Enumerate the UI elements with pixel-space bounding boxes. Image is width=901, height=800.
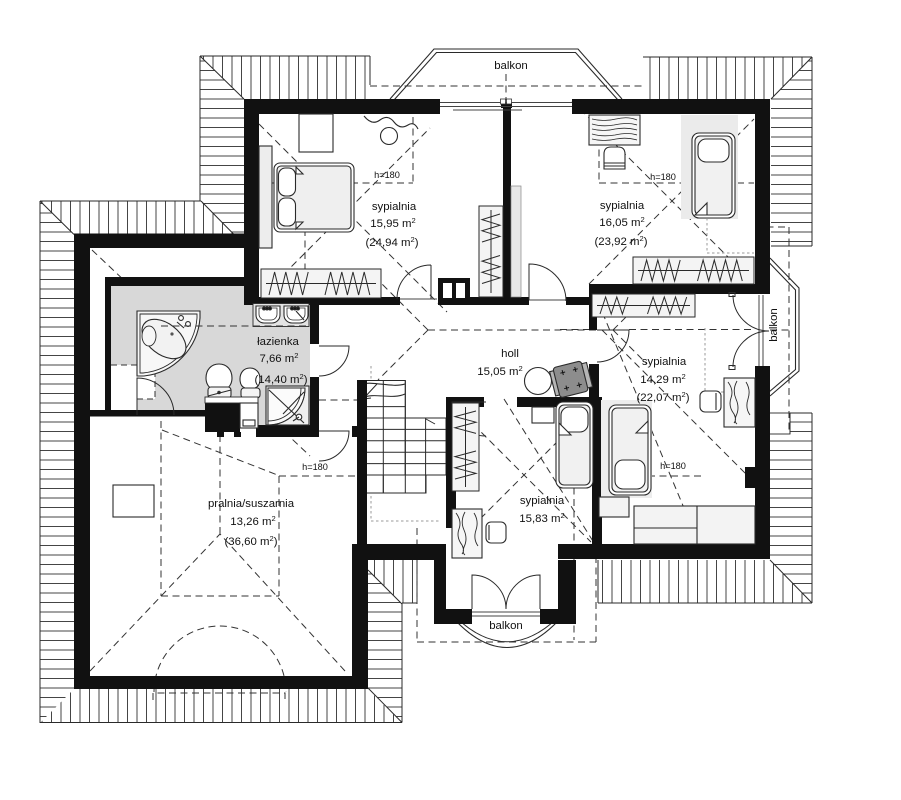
svg-text:16,05 m2: 16,05 m2 <box>599 215 644 229</box>
svg-text:h=180: h=180 <box>650 172 676 182</box>
svg-text:h=180: h=180 <box>374 170 400 180</box>
svg-text:15,83 m2: 15,83 m2 <box>519 511 564 525</box>
svg-text:13,26 m2: 13,26 m2 <box>230 514 275 528</box>
svg-text:sypialnia: sypialnia <box>642 356 687 368</box>
svg-text:14,29 m2: 14,29 m2 <box>640 372 685 386</box>
svg-text:7,66 m2: 7,66 m2 <box>259 351 298 365</box>
svg-text:15,05 m2: 15,05 m2 <box>477 364 522 378</box>
svg-text:15,95 m2: 15,95 m2 <box>370 216 415 230</box>
svg-text:pralnia/suszarnia: pralnia/suszarnia <box>208 498 295 510</box>
svg-text:sypialnia: sypialnia <box>372 201 417 213</box>
svg-text:balkon: balkon <box>494 60 528 72</box>
svg-text:holl: holl <box>501 348 519 360</box>
svg-text:łazienka: łazienka <box>257 336 299 348</box>
svg-text:sypialnia: sypialnia <box>600 200 645 212</box>
svg-text:h=180: h=180 <box>302 462 328 472</box>
svg-text:balkon: balkon <box>489 620 523 632</box>
svg-text:sypialnia: sypialnia <box>520 495 565 507</box>
svg-text:balkon: balkon <box>768 308 780 342</box>
svg-text:h=180: h=180 <box>660 461 686 471</box>
